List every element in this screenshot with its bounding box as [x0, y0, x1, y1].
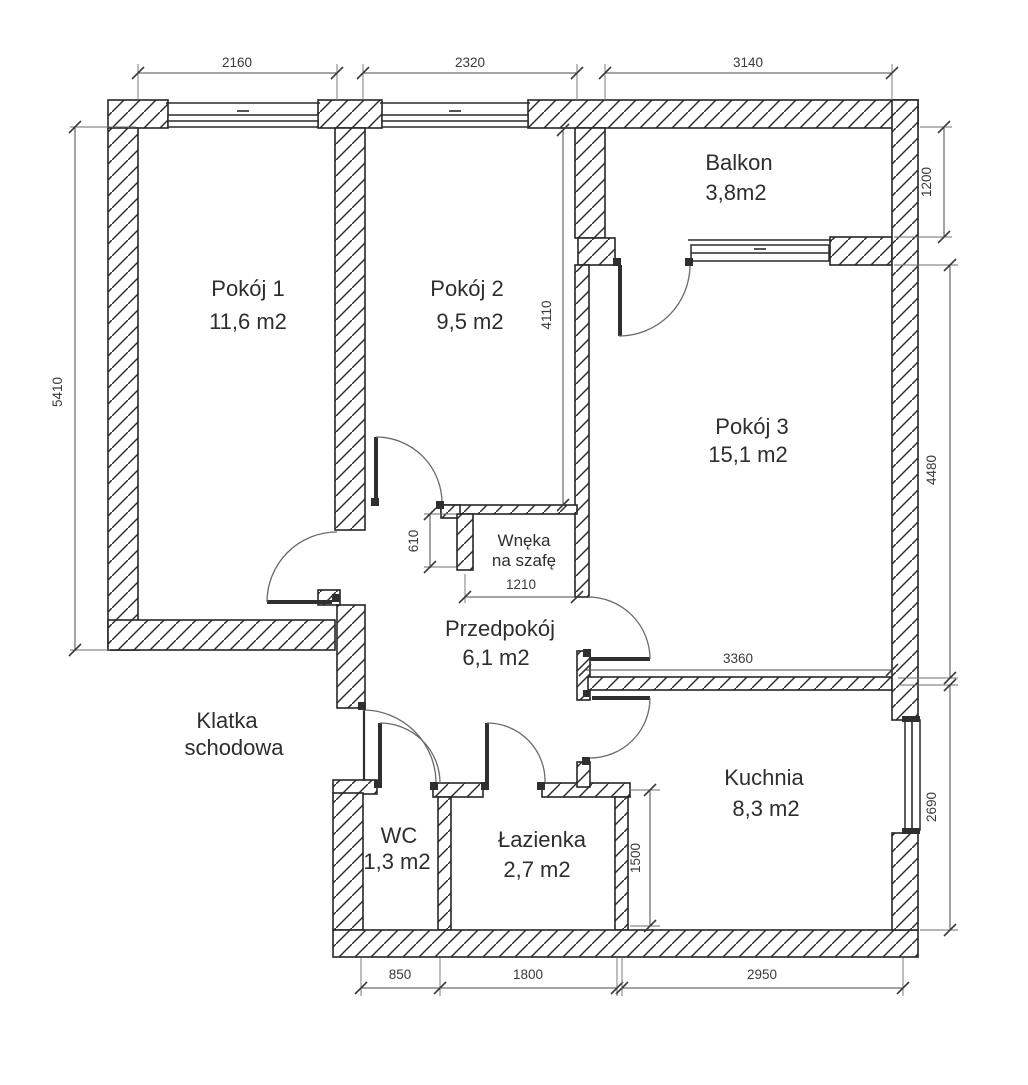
label-pokoj3-area: 15,1 m2: [708, 442, 788, 467]
door-entrance: [363, 710, 436, 783]
wall-segment: [108, 620, 335, 650]
label-pokoj1-name: Pokój 1: [211, 276, 284, 301]
wall-segment: [108, 128, 138, 650]
dimensions: 2160 2320 3140 5410: [50, 55, 958, 996]
label-przedpokoj-name: Przedpokój: [445, 616, 555, 641]
label-lazienka-name: Łazienka: [498, 827, 587, 852]
door-jamb-marks: [332, 258, 693, 790]
door-pokoj2: [376, 437, 442, 503]
wall-segment: [575, 128, 605, 238]
dim-label: 2160: [222, 55, 252, 70]
windows: [166, 103, 920, 834]
wall-segment: [578, 238, 615, 265]
dim-top-2320: 2320: [357, 55, 583, 100]
dim-bottom-850: 850: [355, 958, 446, 996]
door-lazienka: [487, 723, 545, 783]
dim-label: 850: [389, 967, 412, 982]
wall-segment: [457, 514, 473, 570]
wall-segment: [333, 930, 918, 957]
label-wc-area: 1,3 m2: [363, 849, 430, 874]
wall-segment: [577, 762, 590, 787]
wall-segment: [830, 237, 892, 265]
dim-pokoj2-4110: 4110: [539, 124, 569, 511]
label-balkon-area: 3,8m2: [705, 180, 766, 205]
door-kuchnia: [590, 698, 650, 758]
dim-bottom-2950: 2950: [616, 958, 909, 996]
label-wneka-line1: Wnęka: [498, 531, 551, 550]
dim-label: 1210: [506, 577, 536, 592]
dim-label: 3360: [723, 651, 753, 666]
label-klatka-line1: Klatka: [196, 708, 258, 733]
dim-top-3140: 3140: [599, 55, 898, 100]
label-klatka-line2: schodowa: [184, 735, 284, 760]
wall-segment: [892, 100, 918, 720]
dim-top-2160: 2160: [132, 55, 343, 100]
dim-label: 1200: [919, 167, 934, 197]
floor-plan-drawing: 2160 2320 3140 5410: [0, 0, 1028, 1080]
label-wneka-line2: na szafę: [492, 551, 556, 570]
label-pokoj3-name: Pokój 3: [715, 414, 788, 439]
window-kuchnia: [902, 716, 920, 834]
dim-bottom-1800: 1800: [440, 958, 623, 996]
dim-label: 2950: [747, 967, 777, 982]
wall-segment: [892, 833, 918, 930]
dim-lazienka-1500: 1500: [628, 784, 660, 932]
dim-label: 610: [406, 530, 421, 553]
door-pokoj3: [588, 597, 650, 659]
dim-label: 4480: [924, 455, 939, 485]
dim-kuchnia-3360: 3360: [579, 651, 898, 676]
wall-segment: [615, 797, 628, 930]
wall-segment: [575, 265, 589, 597]
wall-segment: [441, 505, 577, 514]
wall-segment: [335, 128, 365, 530]
dim-label: 3140: [733, 55, 763, 70]
dim-wneka-1210: 1210: [459, 574, 583, 603]
door-balkon: [619, 265, 690, 336]
label-kuchnia-area: 8,3 m2: [732, 796, 799, 821]
window-pokoj2: [380, 103, 530, 127]
floor-plan-canvas: 2160 2320 3140 5410: [0, 0, 1028, 1080]
dim-label: 4110: [539, 300, 554, 329]
wall-segment: [333, 793, 363, 930]
label-pokoj1-area: 11,6 m2: [209, 309, 287, 334]
wall-segment: [318, 100, 382, 128]
window-balkon: [688, 240, 832, 261]
doors: [267, 258, 693, 790]
wall-segment: [108, 100, 168, 128]
dim-label: 2320: [455, 55, 485, 70]
label-pokoj2-area: 9,5 m2: [436, 309, 503, 334]
window-pokoj1: [166, 103, 320, 127]
door-wc: [380, 723, 440, 783]
wall-segment: [337, 605, 365, 708]
dim-label: 1500: [628, 843, 643, 873]
wall-segment: [438, 797, 451, 930]
label-lazienka-area: 2,7 m2: [503, 857, 570, 882]
wall-segment: [588, 677, 892, 690]
label-balkon-name: Balkon: [705, 150, 772, 175]
wall-segment: [433, 783, 483, 797]
dim-label: 2690: [924, 792, 939, 822]
dim-label: 5410: [50, 377, 65, 407]
wall-segment: [333, 780, 377, 794]
wall-segment: [528, 100, 918, 128]
label-pokoj2-name: Pokój 2: [430, 276, 503, 301]
label-wc-name: WC: [381, 823, 418, 848]
label-kuchnia-name: Kuchnia: [724, 765, 804, 790]
label-przedpokoj-area: 6,1 m2: [462, 645, 529, 670]
dim-label: 1800: [513, 967, 543, 982]
